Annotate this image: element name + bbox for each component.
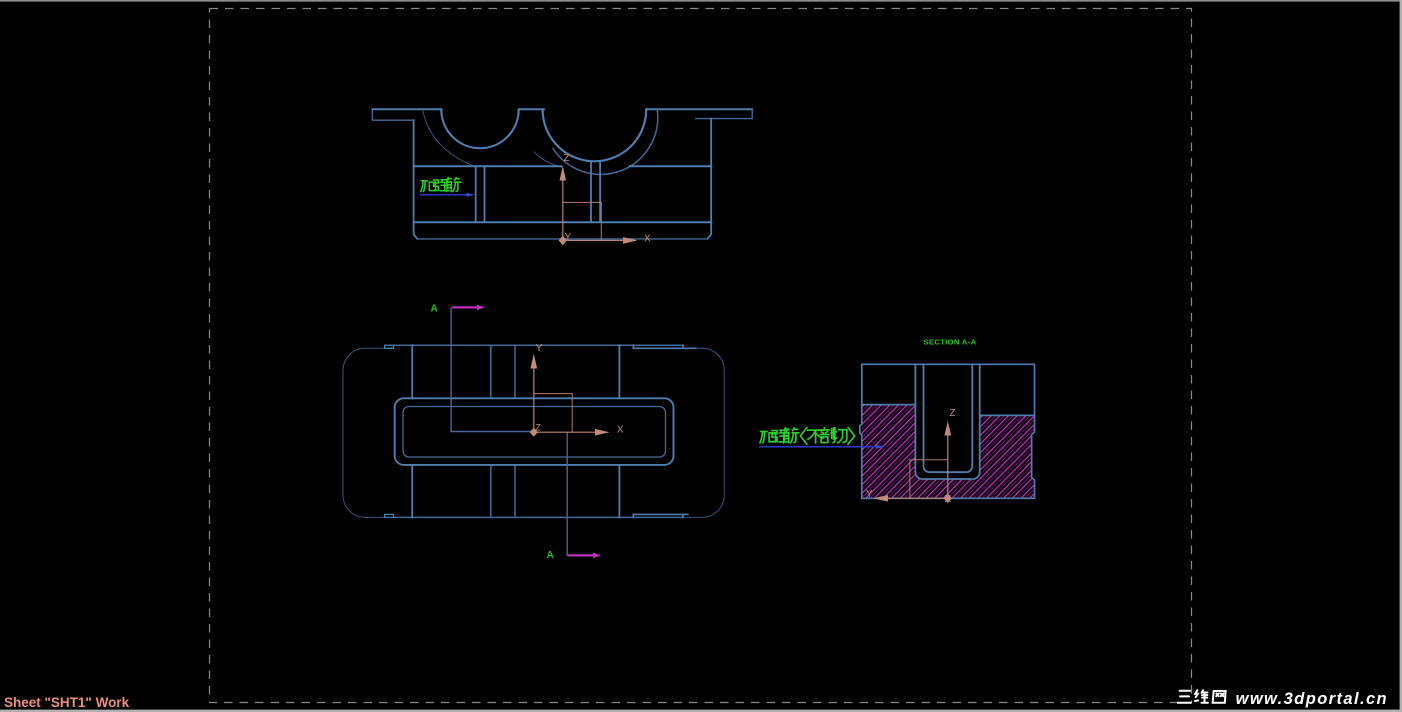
svg-text:X: X xyxy=(617,425,624,436)
svg-text:Y: Y xyxy=(536,343,543,354)
svg-text:Z: Z xyxy=(950,408,956,419)
svg-text:X: X xyxy=(644,234,651,245)
svg-text:A: A xyxy=(431,304,438,315)
svg-text:X: X xyxy=(945,494,952,505)
svg-text:www.3dportal.cn: www.3dportal.cn xyxy=(1236,690,1388,708)
svg-text:Z: Z xyxy=(535,423,541,433)
svg-text:Z: Z xyxy=(564,153,570,164)
svg-text:Y: Y xyxy=(866,489,873,500)
svg-text:Sheet "SHT1" Work: Sheet "SHT1" Work xyxy=(4,695,130,710)
svg-text:SECTION A-A: SECTION A-A xyxy=(924,337,977,346)
svg-text:A: A xyxy=(547,550,554,561)
svg-text:Y: Y xyxy=(565,232,572,243)
